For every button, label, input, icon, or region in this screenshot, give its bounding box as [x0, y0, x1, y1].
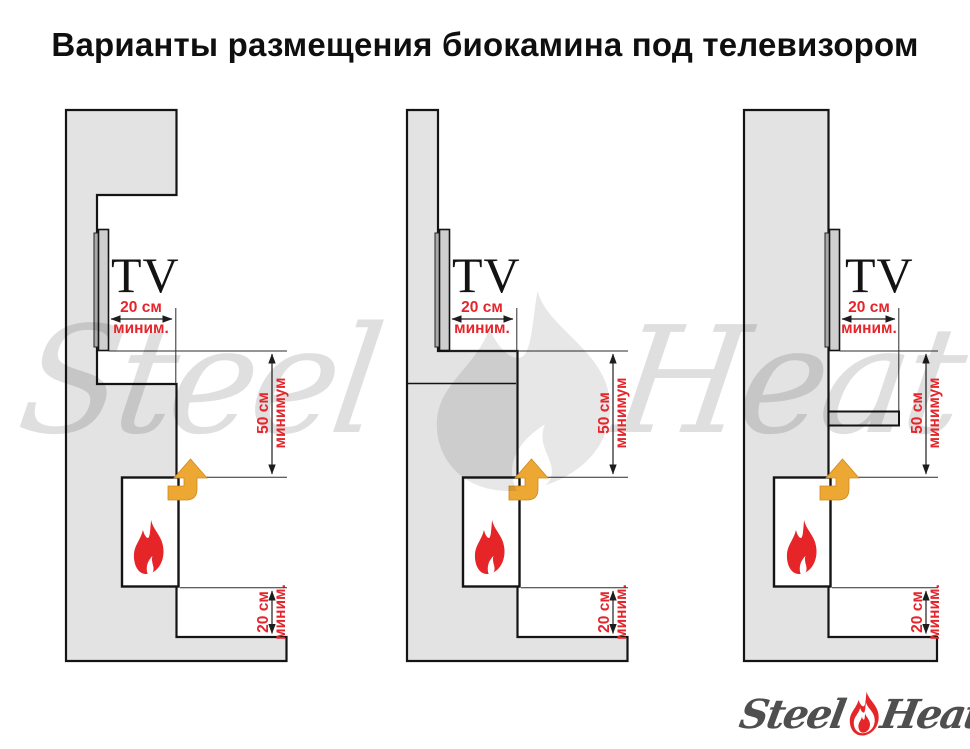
steelheat-logo: Steel Heat — [740, 686, 970, 744]
floor-gap-dim-label: 20 см миним. — [909, 537, 943, 687]
tv-gap-value-label: 20 см — [437, 299, 527, 316]
tv-gap-min-label: миним. — [824, 320, 914, 337]
tv-label: TV — [452, 250, 521, 300]
shelf-ledge-3 — [829, 412, 900, 426]
logo-heat-text: Heat — [878, 695, 970, 735]
height-dim-label: 50 см минимум — [909, 338, 943, 488]
floor-gap-value: 20 см — [255, 537, 272, 687]
height-min: минимум — [613, 338, 630, 488]
diagram-variant-2 — [407, 110, 628, 661]
tv-gap-min-label: миним. — [96, 320, 186, 337]
floor-gap-min: миним. — [613, 537, 630, 687]
floor-gap-min: миним. — [926, 537, 943, 687]
height-dim-label: 50 см минимум — [596, 338, 630, 488]
floor-gap-dim-label: 20 см миним. — [255, 537, 289, 687]
tv-label: TV — [111, 250, 180, 300]
tv-gap-value-label: 20 см — [824, 299, 914, 316]
tv-gap-min-label: миним. — [437, 320, 527, 337]
height-dim-label: 50 см минимум — [255, 338, 289, 488]
height-value: 50 см — [255, 338, 272, 488]
page-title: Варианты размещения биокамина под телеви… — [0, 26, 970, 64]
floor-gap-dim-label: 20 см миним. — [596, 537, 630, 687]
floor-gap-min: миним. — [272, 537, 289, 687]
height-value: 50 см — [909, 338, 926, 488]
height-min: минимум — [272, 338, 289, 488]
placement-diagram-canvas: Варианты размещения биокамина под телеви… — [0, 0, 970, 749]
tv-gap-value-label: 20 см — [96, 299, 186, 316]
floor-gap-value: 20 см — [909, 537, 926, 687]
height-min: минимум — [926, 338, 943, 488]
floor-gap-value: 20 см — [596, 537, 613, 687]
diagram-variant-1 — [66, 110, 287, 661]
tv-label: TV — [845, 250, 914, 300]
logo-steel-text: Steel — [736, 695, 847, 735]
diagrams-drawing — [0, 0, 970, 749]
height-value: 50 см — [596, 338, 613, 488]
